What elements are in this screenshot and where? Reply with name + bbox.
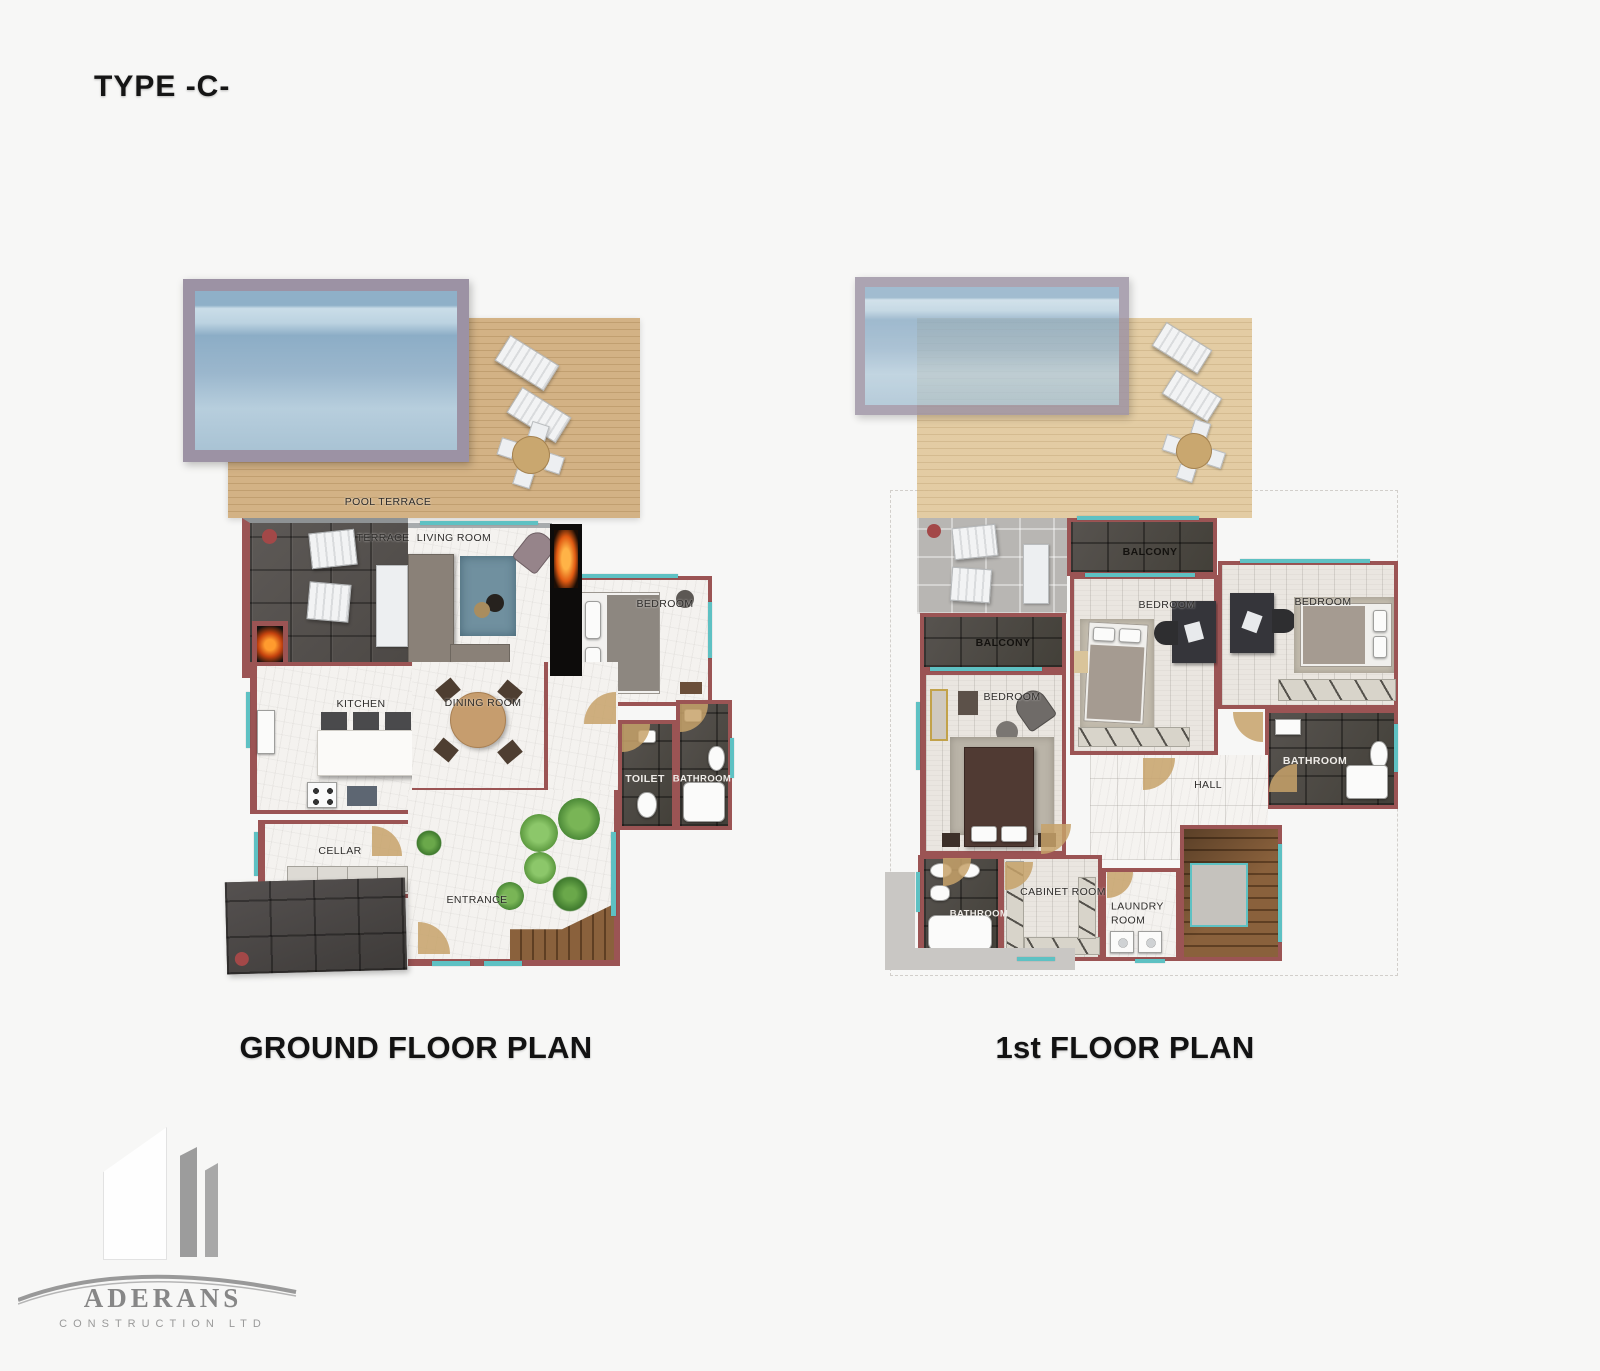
bed-pillow: [1373, 636, 1387, 658]
plant: [520, 814, 558, 852]
kitchen-island: [317, 730, 419, 776]
bed: [1300, 603, 1392, 667]
toilet-label: TOILET: [625, 773, 665, 785]
terrace-lounger: [951, 524, 998, 560]
stair-landing: [1190, 863, 1248, 927]
nightstand: [942, 833, 960, 847]
ground-floor-plan: POOL TERRACE TERRACE LIVING ROOM: [180, 272, 732, 975]
living-room-label: LIVING ROOM: [417, 532, 491, 544]
fireplace: [550, 524, 582, 676]
plant: [524, 852, 556, 884]
bedroom-right-label: BEDROOM: [1294, 596, 1351, 608]
bathroom-left-label: BATHROOM: [950, 909, 1008, 920]
kitchen-sink: [257, 710, 275, 754]
bar-stool: [385, 712, 411, 730]
terrace-label: TERRACE: [357, 532, 410, 544]
terrace-sofa: [376, 565, 408, 647]
window: [1278, 844, 1282, 942]
deck-table: [507, 431, 555, 479]
window: [1135, 959, 1165, 963]
counter: [347, 786, 377, 806]
palm-plant: [552, 876, 588, 912]
window: [484, 961, 522, 966]
stove: [307, 782, 337, 808]
washer: [1110, 931, 1134, 953]
building-bar-icon: [205, 1163, 218, 1257]
swimming-pool-ghost: [855, 277, 1129, 415]
bed-pillow: [1093, 627, 1116, 642]
bedroom-ground-label: BEDROOM: [636, 598, 693, 610]
bed-pillow: [971, 826, 997, 842]
bar-stool: [321, 712, 347, 730]
bed-pillow: [1001, 826, 1027, 842]
planter-dot: [927, 524, 941, 538]
logo-company-subtitle: CONSTRUCTION LTD: [53, 1318, 273, 1330]
terrace-lounger: [306, 581, 351, 623]
bed-blanket: [1303, 606, 1365, 664]
window: [916, 702, 920, 770]
desk: [1230, 593, 1274, 653]
window: [730, 738, 734, 778]
swimming-pool: [183, 279, 469, 462]
plant: [416, 830, 442, 856]
bed-pillow: [1373, 610, 1387, 632]
terrace-lounger: [308, 529, 358, 570]
shelf: [958, 691, 978, 715]
window: [930, 667, 1042, 671]
window: [582, 574, 678, 578]
bed: [1083, 621, 1148, 724]
plant: [558, 798, 600, 840]
bathtub: [928, 915, 992, 951]
pool-water: [865, 287, 1119, 405]
window: [246, 692, 250, 748]
bed-pillow: [585, 601, 601, 639]
entrance-stairs: [510, 904, 614, 960]
window: [708, 602, 712, 658]
bed-pillow: [1119, 628, 1142, 643]
laundry-room-label: LAUNDRY ROOM: [1111, 900, 1175, 927]
window: [254, 832, 258, 876]
fire-glow: [554, 530, 578, 588]
staircase: [1180, 825, 1282, 961]
mirror: [930, 689, 948, 741]
bedroom-left-label: BEDROOM: [983, 691, 1040, 703]
window: [420, 521, 538, 525]
wardrobe: [1078, 727, 1190, 747]
coffee-table: [474, 602, 490, 618]
ground-floor-title: GROUND FLOOR PLAN: [200, 1030, 632, 1066]
toilet-wc: [637, 792, 657, 818]
kitchen-room: [250, 662, 412, 814]
window: [432, 961, 470, 966]
window: [1240, 559, 1370, 563]
window: [1017, 957, 1055, 961]
balcony-top-label: BALCONY: [1123, 546, 1178, 558]
bathtub: [683, 782, 725, 822]
dining-room: [412, 662, 548, 792]
living-room: [408, 523, 552, 677]
type-label: TYPE -C-: [94, 70, 230, 104]
window: [1394, 724, 1398, 772]
toilet-wc: [930, 885, 950, 901]
bathroom-ground-label: BATHROOM: [673, 774, 731, 785]
dining-chair: [433, 737, 459, 762]
pool-water: [195, 291, 457, 450]
bar-stool: [353, 712, 379, 730]
terrace-ghost: [917, 518, 1067, 614]
wardrobe: [1278, 679, 1396, 701]
entrance-label: ENTRANCE: [447, 894, 508, 906]
bench: [1074, 651, 1088, 673]
cellar-label: CELLAR: [318, 845, 361, 857]
planter-dot: [235, 952, 249, 966]
dining-chair: [497, 739, 523, 764]
toilet-wc: [708, 746, 725, 771]
dresser: [680, 682, 702, 694]
dining-room-label: DINING ROOM: [445, 697, 522, 709]
building-icon: [103, 1127, 167, 1260]
first-floor-plan: BALCONY BALCONY BEDROOM: [845, 272, 1405, 975]
front-porch: [225, 878, 407, 975]
washer: [1138, 931, 1162, 953]
terrace-sofa: [1023, 544, 1049, 604]
laptop: [1184, 621, 1204, 643]
kitchen-label: KITCHEN: [337, 698, 386, 710]
bedroom-middle-label: BEDROOM: [1138, 599, 1195, 611]
desk-chair: [1272, 609, 1296, 633]
vanity-sink: [1275, 719, 1301, 735]
bathroom-right-label: BATHROOM: [1283, 755, 1347, 767]
window: [1077, 516, 1199, 520]
balcony-left-label: BALCONY: [976, 637, 1031, 649]
planter-dot: [262, 529, 277, 544]
window-glass-wall: [611, 832, 616, 916]
laptop: [1241, 611, 1262, 633]
hall-label: HALL: [1194, 779, 1222, 791]
logo-company-name: ADERANS: [63, 1283, 263, 1314]
pool-terrace-label: POOL TERRACE: [345, 496, 432, 508]
shower-tray: [1346, 765, 1388, 799]
bed: [964, 747, 1034, 847]
bed-blanket: [1087, 645, 1145, 722]
window: [916, 872, 920, 912]
window: [1085, 573, 1195, 577]
first-floor-title: 1st FLOOR PLAN: [900, 1030, 1350, 1066]
desk-chair: [1154, 621, 1178, 645]
cabinet-room-label: CABINET ROOM: [1020, 886, 1106, 898]
building-bar-icon: [180, 1147, 197, 1257]
bedroom-right: [1218, 561, 1398, 709]
page-background: TYPE -C- POOL TERRACE TERRACE: [0, 0, 1600, 1371]
terrace-lounger: [950, 567, 992, 604]
